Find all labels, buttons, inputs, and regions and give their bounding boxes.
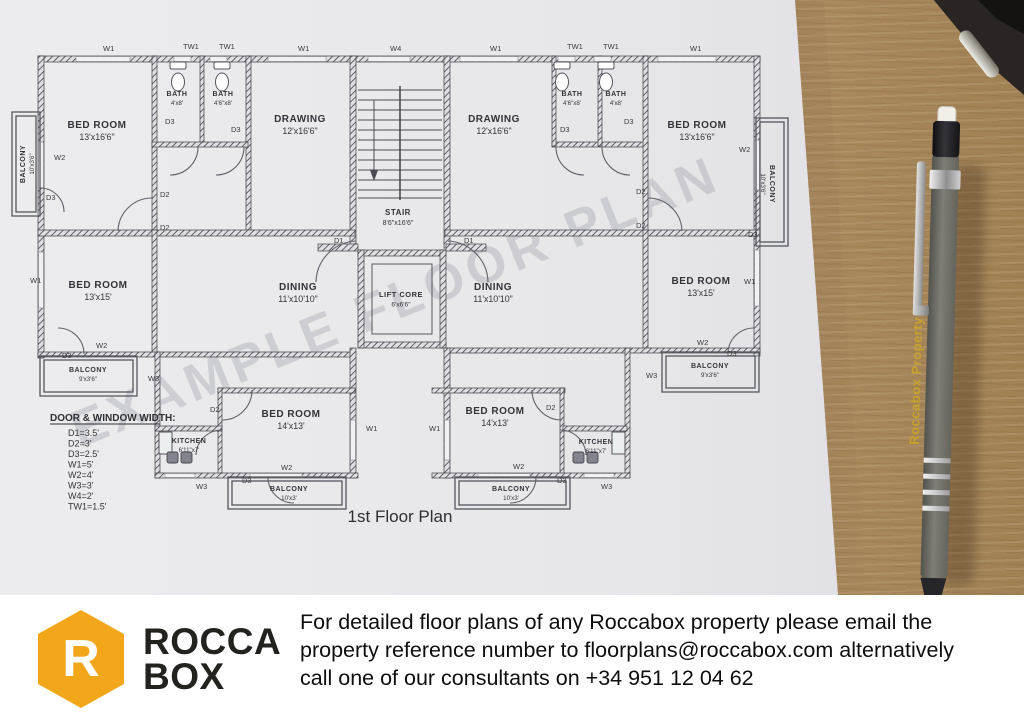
footer-text-line2: property reference number to floorplans@… [300,637,960,665]
wall-tag: W1 [103,44,114,53]
room-dimensions: 11'x10'10" [473,294,513,304]
room-label-group: BED ROOM13'x16'6" [68,120,127,142]
room-dimensions: 13'x15' [687,288,715,298]
logo-letter: R [62,630,100,688]
wall-tag: W2 [739,145,750,154]
wall-tag: D3 [242,476,252,485]
room-name: DINING [474,282,512,293]
legend-item: W4=2' [68,491,94,501]
room-label-group: BALCONY10'x3' [270,486,308,502]
logo-wordmark: ROCCA BOX [143,624,281,694]
roccabox-hexagon-icon: R [33,608,129,710]
wall-tag: W3 [646,371,657,380]
room-dimensions: 12'x16'6" [476,126,511,136]
wall-tag: W1 [298,44,309,53]
room-name: BED ROOM [69,280,128,291]
room-label-group: BALCONY9'x3'6" [69,367,107,383]
room-dimensions: 14'x13' [481,418,509,428]
legend-heading: DOOR & WINDOW WIDTH: [50,413,176,424]
room-name: BATH [562,91,583,98]
pen-tip-cone [919,578,946,595]
wall-tag: W1 [30,276,41,285]
stair [358,86,442,200]
room-label-group: BALCONY10'x3'6" [759,165,775,203]
room-label-group: BALCONY10'x3' [492,486,530,502]
room-label-group: DINING11'x10'10" [278,282,318,304]
room-label-group: BALCONY9'x3'6" [691,363,729,379]
wall-tag: W2 [54,153,65,162]
room-name: BATH [606,91,627,98]
kitchen-fixtures [159,432,625,463]
wall-tag: D3 [46,193,56,202]
room-name: BED ROOM [466,406,525,417]
room-name: BATH [213,91,234,98]
room-name: BALCONY [768,165,775,203]
room-dimensions: 13'x15' [84,292,112,302]
room-name: KITCHEN [579,439,614,446]
room-label-group: BATH4'6"x8' [562,91,583,107]
room-dimensions: 6'x6'6" [391,302,411,309]
wall-tag: W2 [96,341,107,350]
branded-mechanical-pencil: Roccabox Property [896,105,979,579]
pen-ring [922,506,949,512]
wall-tag: D3 [165,117,175,126]
pen-ring [923,474,950,480]
room-dimensions: 9'x3'6" [79,376,97,383]
wall-tag: D1 [334,236,344,245]
pen-ferrule [932,121,960,158]
room-name: BALCONY [691,363,729,370]
pen-silver-collar [929,170,961,190]
wall-tag: D1 [464,236,474,245]
wall-tag: TW1 [567,42,583,51]
wall-tag: D3 [560,125,570,134]
footer-text-line1: For detailed floor plans of any Roccabox… [300,609,960,637]
room-dimensions: 4'6"x8' [214,100,232,107]
wall-tag: D3 [557,476,567,485]
room-dimensions: 6'11"x7' [179,447,200,454]
logo-word-box: BOX [143,659,281,694]
legend-item: D3=2.5' [68,449,99,459]
room-name: DINING [279,282,317,293]
room-label-group: DRAWING12'x16'6" [274,114,326,136]
room-name: BED ROOM [68,120,127,131]
wall-tag: W1 [690,44,701,53]
room-dimensions: 9'x3'6" [701,372,719,379]
photo-floorplan-on-desk: EXAMPLE FLOOR PLAN [0,0,1024,595]
wall-tag: W1 [429,424,440,433]
wall-tag: D2 [160,223,170,232]
room-dimensions: 8'6"x16'6" [383,220,414,227]
wall-tag: W2 [697,338,708,347]
roccabox-logo: R ROCCA BOX [33,608,281,710]
wall-tag: TW1 [603,42,619,51]
plan-title: 1st Floor Plan [348,507,453,526]
room-labels: BED ROOM13'x16'6"BATH4'x8'BATH4'6"x8'DRA… [20,91,775,502]
room-label-group: KITCHEN6'11"x7' [172,438,207,454]
room-name: STAIR [385,208,411,217]
room-dimensions: 10'x3' [281,495,297,502]
wall-tag: D3 [231,125,241,134]
wall-tag: D2 [636,221,646,230]
room-name: KITCHEN [172,438,207,445]
room-name: BATH [167,91,188,98]
footer: R ROCCA BOX For detailed floor plans of … [0,595,1024,724]
room-name: DRAWING [274,114,326,125]
room-name: BALCONY [69,367,107,374]
wall-tag: D2 [636,187,646,196]
legend-item: D1=3.5' [68,428,99,438]
room-dimensions: 4'x8' [171,100,183,107]
room-dimensions: 12'x16'6" [282,126,317,136]
room-dimensions: 11'x10'10" [278,294,318,304]
wall-tag: D3 [748,230,758,239]
logo-word-rocca: ROCCA [143,624,281,659]
wall-tag: W1 [744,277,755,286]
floor-plan-drawing: EXAMPLE FLOOR PLAN [0,0,845,595]
wall-tag: W1 [366,424,377,433]
wall-tag: W3 [601,482,612,491]
room-label-group: BATH4'x8' [167,91,188,107]
wall-tag: D2 [546,403,556,412]
legend-item: D2=3' [68,439,92,449]
wall-tag: W1 [490,44,501,53]
room-label-group: BATH4'x8' [606,91,627,107]
wall-tag: W3 [148,374,159,383]
pen-ring [923,490,950,496]
room-name: BED ROOM [672,276,731,287]
room-name: BALCONY [492,486,530,493]
pen-brand-text: Roccabox Property [906,301,925,461]
wall-tag: D3 [624,117,634,126]
footer-text-line3: call one of our consultants on +34 951 1… [300,665,960,693]
room-label-group: BED ROOM13'x16'6" [668,120,727,142]
wall-tag: TW1 [219,42,235,51]
room-name: DRAWING [468,114,520,125]
room-dimensions: 13'x16'6" [679,132,714,142]
room-dimensions: 13'x16'6" [79,132,114,142]
room-dimensions: 4'6"x8' [563,100,581,107]
room-dimensions: 14'x13' [277,421,305,431]
wall-tag: D3 [727,349,737,358]
wall-tag: D2 [160,190,170,199]
pen-clip [913,161,926,313]
wall-tag: D3 [62,351,72,360]
pen-ring [924,458,951,464]
room-dimensions: 10'x3'6" [759,173,766,194]
room-dimensions: 6'11"x7' [586,448,607,455]
room-dimensions: 10'x3' [503,495,519,502]
legend-item: W2=4' [68,470,94,480]
wall-tag: D2 [210,405,220,414]
legend-item: W1=5' [68,460,94,470]
room-name: BED ROOM [668,120,727,131]
wall-tag: W3 [196,482,207,491]
room-label-group: BED ROOM14'x13' [262,409,321,431]
room-dimensions: 10'x3'6" [29,153,36,174]
dark-case-object [914,0,1024,95]
toilet-fixtures [170,62,614,91]
room-name: BED ROOM [262,409,321,420]
room-label-group: BED ROOM13'x15' [672,276,731,298]
room-name: BALCONY [270,486,308,493]
room-label-group: DRAWING12'x16'6" [468,114,520,136]
legend-item: TW1=1.5' [68,502,107,512]
room-label-group: BALCONY10'x3'6" [20,145,36,183]
room-name: BALCONY [20,145,27,183]
footer-text: For detailed floor plans of any Roccabox… [300,609,960,693]
room-name: LIFT CORE [379,290,423,299]
wall-tag: W2 [281,463,292,472]
room-label-group: BED ROOM14'x13' [466,406,525,428]
wall-tag: W2 [513,462,524,471]
room-label-group: STAIR8'6"x16'6" [383,208,414,227]
room-dimensions: 4'x8' [610,100,622,107]
room-label-group: BATH4'6"x8' [213,91,234,107]
wall-tag: W4 [390,44,401,53]
legend-item: W3=3' [68,481,94,491]
wall-tag: TW1 [183,42,199,51]
room-label-group: BED ROOM13'x15' [69,280,128,302]
